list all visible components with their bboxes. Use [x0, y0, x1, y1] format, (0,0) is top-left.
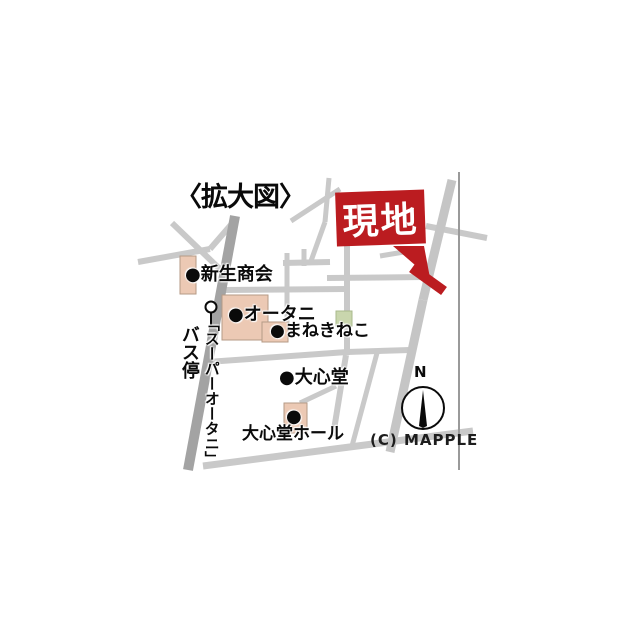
site-label: 現地 [342, 191, 420, 246]
compass-north-label: N [414, 365, 427, 381]
road [347, 350, 410, 352]
road [222, 289, 347, 290]
map-credit: (C) MAPPLE [370, 433, 478, 449]
poi-label-shinsei-shokai: ●新生商会 [185, 266, 273, 285]
road [283, 262, 330, 263]
site-label-box: 現地 [335, 189, 426, 246]
road [300, 386, 336, 403]
road [311, 222, 325, 261]
road-label-super-otani: 「スーパーオータニ」 [203, 316, 219, 466]
poi-label-daishindo-hall: 大心堂ホール [242, 426, 344, 444]
poi-label-daishindo: ●大心堂 [279, 369, 349, 388]
road [207, 352, 347, 362]
enlarged-map: 現地 〈拡大図〉 ●新生商会 ●オータニ ●まねきねこ ●大心堂 ● 大心堂ホー… [0, 0, 640, 640]
bus-stop-label: バス停 [179, 325, 198, 379]
compass-icon [402, 387, 444, 429]
map-canvas [0, 0, 640, 640]
road [327, 277, 425, 278]
map-title: 〈拡大図〉 [175, 184, 305, 212]
poi-label-manekineko: ●まねきねこ [270, 323, 370, 341]
road [380, 252, 404, 256]
